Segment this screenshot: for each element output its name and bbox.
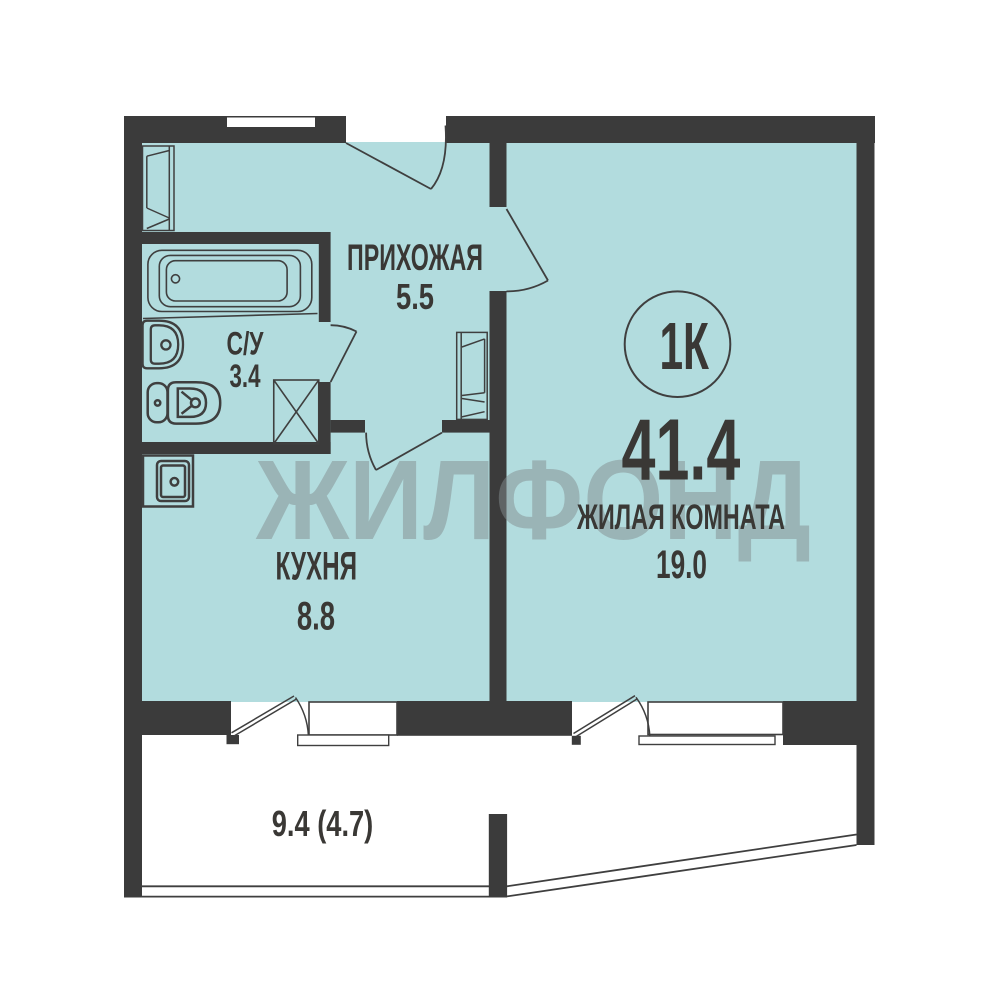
svg-text:9.4 (4.7): 9.4 (4.7) <box>272 803 374 844</box>
svg-text:8.8: 8.8 <box>297 595 335 639</box>
svg-text:5.5: 5.5 <box>396 276 434 317</box>
svg-text:ЖИЛАЯ КОМНАТА: ЖИЛАЯ КОМНАТА <box>576 497 785 537</box>
svg-text:ПРИХОЖАЯ: ПРИХОЖАЯ <box>347 236 483 278</box>
svg-text:19.0: 19.0 <box>656 543 707 587</box>
svg-text:1К: 1К <box>659 310 709 384</box>
svg-text:КУХНЯ: КУХНЯ <box>276 544 358 588</box>
svg-text:3.4: 3.4 <box>230 358 261 394</box>
svg-text:С/У: С/У <box>227 326 265 362</box>
svg-text:41.4: 41.4 <box>622 402 741 499</box>
